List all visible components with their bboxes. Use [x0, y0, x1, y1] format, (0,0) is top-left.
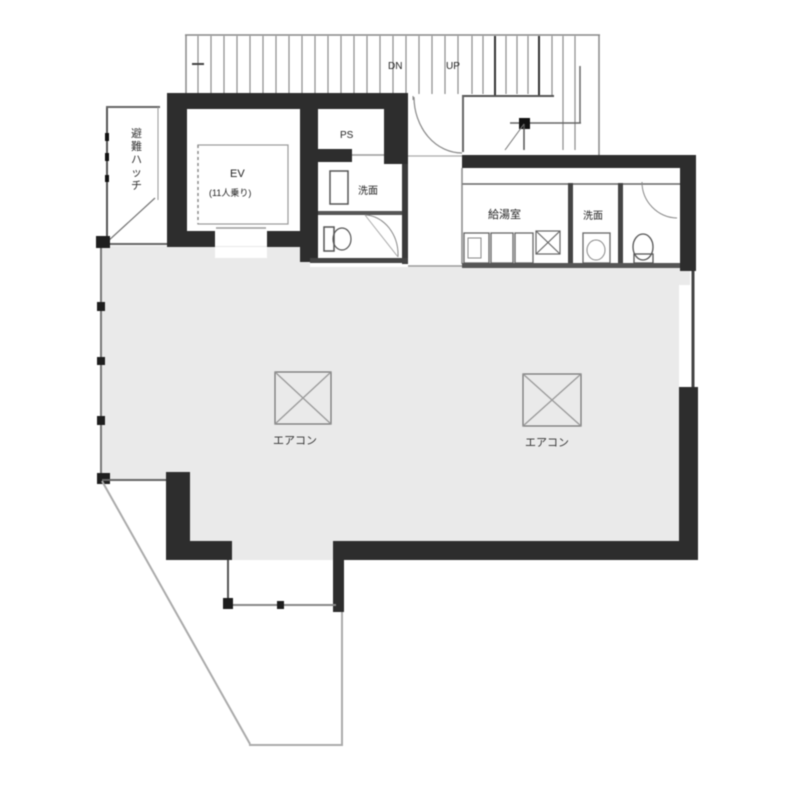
svg-text:UP: UP: [446, 61, 460, 72]
svg-text:ッ: ッ: [131, 167, 142, 179]
svg-text:ハ: ハ: [131, 154, 142, 166]
svg-text:洗面: 洗面: [358, 185, 378, 197]
svg-text:エアコン: エアコン: [273, 435, 317, 447]
svg-text:避: 避: [131, 126, 142, 140]
svg-text:DN: DN: [388, 61, 402, 72]
svg-text:EV: EV: [230, 168, 245, 180]
svg-text:(11人乗り): (11人乗り): [209, 187, 251, 198]
svg-text:チ: チ: [131, 179, 142, 192]
svg-text:難: 難: [131, 140, 142, 153]
svg-text:エアコン: エアコン: [525, 437, 569, 449]
svg-text:洗面: 洗面: [583, 210, 603, 222]
svg-text:給湯室: 給湯室: [488, 207, 521, 221]
svg-text:PS: PS: [340, 130, 354, 141]
